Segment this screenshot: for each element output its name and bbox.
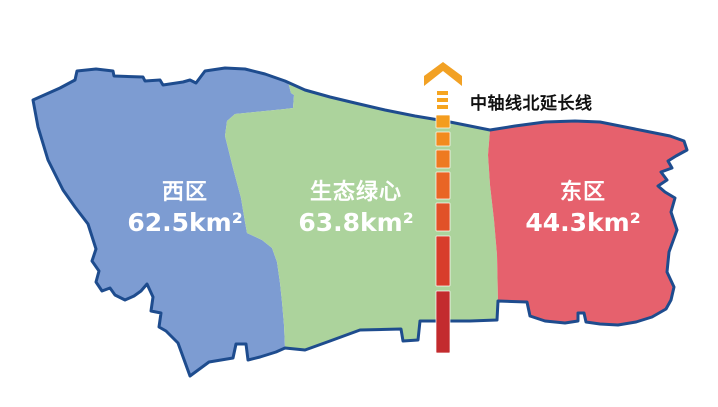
district-map-graphic — [0, 0, 718, 407]
map-infographic: 西区 62.5km² 生态绿心 63.8km² 东区 44.3km² 中轴线北延… — [0, 0, 718, 407]
axis-dash-segment — [436, 291, 450, 353]
axis-tick — [437, 91, 448, 95]
axis-dash-segment — [436, 115, 450, 128]
axis-tick — [437, 98, 448, 102]
axis-dash-segment — [436, 236, 450, 286]
axis-dash-segment — [436, 203, 450, 231]
region-east-shape — [488, 121, 687, 325]
axis-extension-label: 中轴线北延长线 — [470, 89, 593, 114]
axis-dash-segment — [436, 132, 450, 146]
axis-dash-segment — [436, 150, 450, 168]
axis-tick — [437, 105, 448, 109]
axis-dash-segment — [436, 172, 450, 199]
north-arrow-icon — [424, 62, 462, 86]
